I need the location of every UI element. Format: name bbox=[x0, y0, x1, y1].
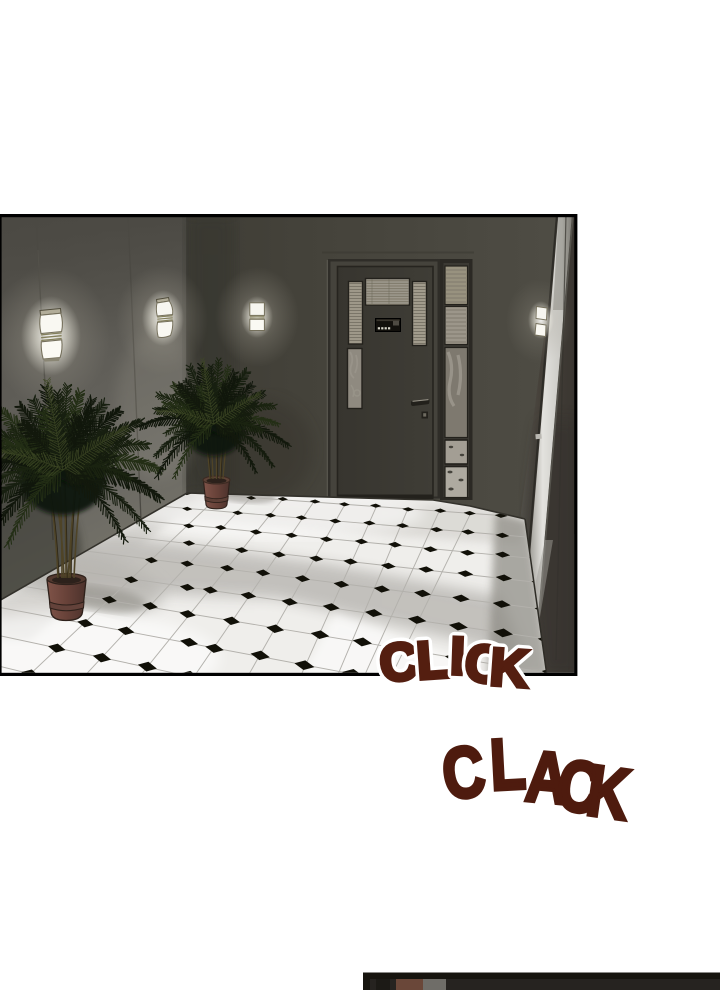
svg-text:K: K bbox=[488, 638, 530, 700]
svg-text:L: L bbox=[488, 723, 527, 805]
svg-text:L: L bbox=[415, 630, 451, 691]
